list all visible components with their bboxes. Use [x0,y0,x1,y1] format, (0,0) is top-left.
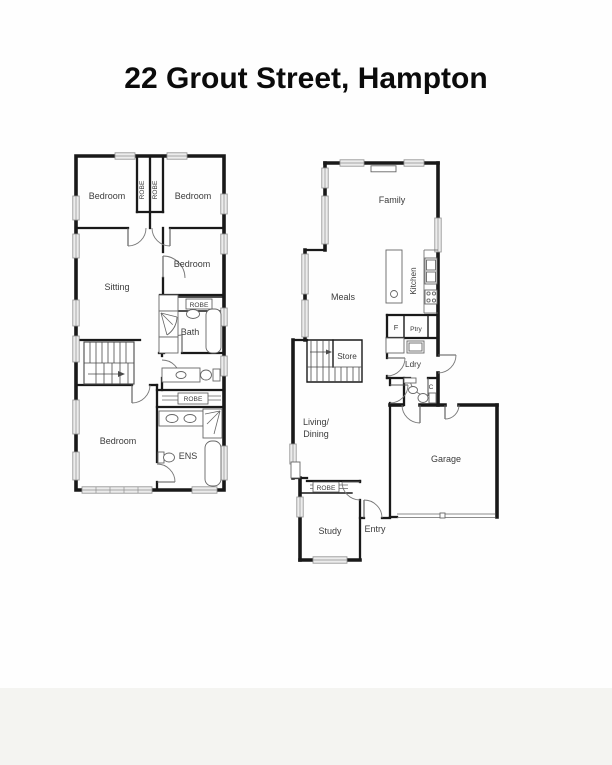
room-label-bedroom-top-right: Bedroom [175,191,212,201]
room-label-robe-bath: ROBE [190,302,209,309]
room-label-robe-hall: ROBE [184,396,203,403]
room-label-bedroom-top-left: Bedroom [89,191,126,201]
upper-floor-plan: Bedroom ROBE ROBE Bedroom Bedroom Sittin… [73,153,227,493]
room-label-family: Family [379,195,406,205]
upper-walls [76,156,224,490]
ground-doors [342,355,459,518]
room-label-garage: Garage [431,454,461,464]
room-label-fridge: F [394,323,399,332]
room-label-entry: Entry [364,524,386,534]
ground-stairs [307,340,362,382]
room-label-bedroom-master: Bedroom [100,436,137,446]
room-label-pantry: Ptry [410,326,422,333]
room-label-robe-study: ROBE [317,485,336,492]
room-label-bath: Bath [181,327,200,337]
room-label-study: Study [318,526,342,536]
room-label-store: Store [337,352,357,361]
room-label-sitting: Sitting [104,282,129,292]
ground-floor-plan: Family Meals Kitchen F Ptry Store Ldry C… [290,160,497,563]
room-label-wc: C [429,384,434,391]
room-label-ensuite: ENS [179,451,198,461]
floor-plan-page: 22 Grout Street, Hampton [0,0,612,765]
room-label-living-dining-1: Living/ [303,417,330,427]
room-label-laundry: Ldry [405,360,422,369]
room-label-robe-closet-right: ROBE [152,180,159,199]
room-label-robe-closet-left: ROBE [139,180,146,199]
floor-plan-drawing: Bedroom ROBE ROBE Bedroom Bedroom Sittin… [0,0,612,765]
room-label-bedroom-middle: Bedroom [174,259,211,269]
upper-stairs [84,342,134,384]
room-label-meals: Meals [331,292,356,302]
room-label-kitchen: Kitchen [409,267,418,295]
room-label-living-dining-2: Dining [303,429,329,439]
